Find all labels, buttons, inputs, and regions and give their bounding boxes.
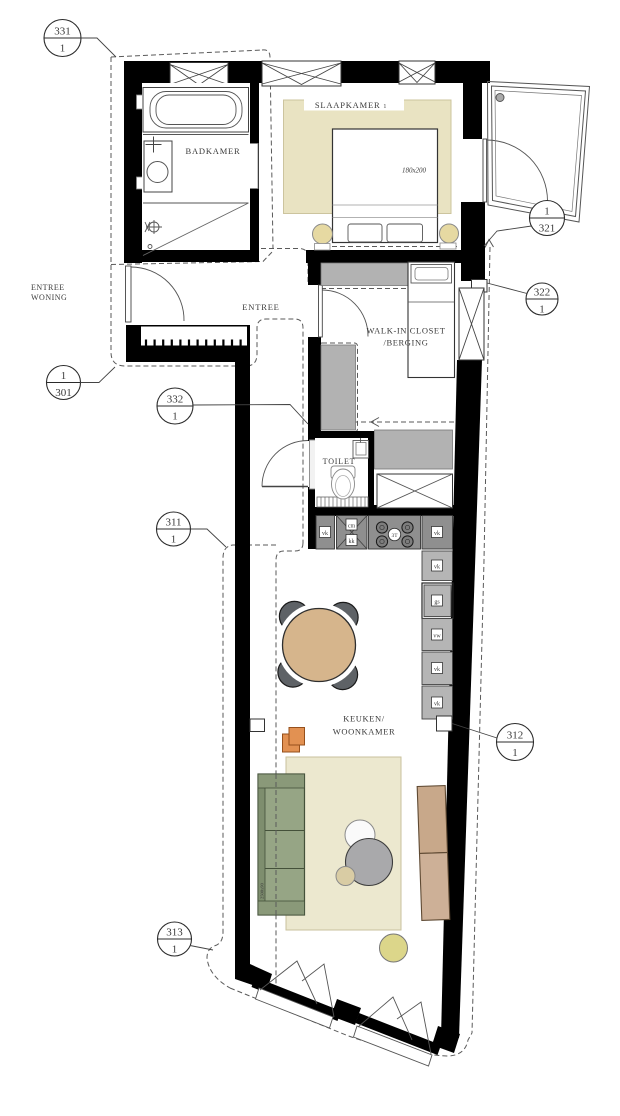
svg-text:vk: vk xyxy=(434,702,440,708)
svg-text:1: 1 xyxy=(539,304,545,316)
svg-text:cm: cm xyxy=(348,524,356,530)
svg-text:311: 311 xyxy=(165,517,181,529)
svg-text:332: 332 xyxy=(167,394,184,406)
svg-text:WALK-IN CLOSET: WALK-IN CLOSET xyxy=(367,326,446,336)
svg-text:301: 301 xyxy=(55,387,72,399)
svg-text:313: 313 xyxy=(166,927,183,939)
svg-text:vk: vk xyxy=(434,667,440,673)
svg-text:1: 1 xyxy=(172,944,178,956)
svg-text:WONING: WONING xyxy=(31,293,67,302)
svg-text:gs: gs xyxy=(434,600,440,606)
svg-text:1: 1 xyxy=(544,206,550,218)
svg-text:KEUKEN/: KEUKEN/ xyxy=(343,714,385,724)
svg-text:WOONKAMER: WOONKAMER xyxy=(333,727,396,737)
svg-text:vk: vk xyxy=(434,565,440,571)
svg-text:1: 1 xyxy=(171,534,177,546)
svg-text:1: 1 xyxy=(512,747,518,759)
svg-text:vk: vk xyxy=(434,531,440,537)
svg-text:180x200: 180x200 xyxy=(402,167,427,175)
svg-text:1: 1 xyxy=(172,411,178,423)
svg-text:1: 1 xyxy=(60,43,66,55)
svg-text:TOILET: TOILET xyxy=(323,457,356,466)
svg-text:312: 312 xyxy=(507,730,524,742)
svg-text:ENTREE: ENTREE xyxy=(242,302,279,312)
svg-text:BADKAMER: BADKAMER xyxy=(185,146,240,156)
svg-text:ENTREE: ENTREE xyxy=(31,283,65,292)
svg-text:SLAAPKAMER 1: SLAAPKAMER 1 xyxy=(315,100,387,110)
svg-text:3T: 3T xyxy=(391,533,398,539)
svg-text:322: 322 xyxy=(534,287,551,299)
svg-text:2500x90: 2500x90 xyxy=(260,883,265,900)
svg-text:/BERGING: /BERGING xyxy=(384,338,429,348)
svg-text:331: 331 xyxy=(54,26,71,38)
svg-text:kk: kk xyxy=(349,539,355,545)
svg-text:1: 1 xyxy=(61,370,67,382)
svg-text:vk: vk xyxy=(322,531,328,537)
svg-text:321: 321 xyxy=(539,223,556,235)
svg-text:vw: vw xyxy=(433,634,441,640)
